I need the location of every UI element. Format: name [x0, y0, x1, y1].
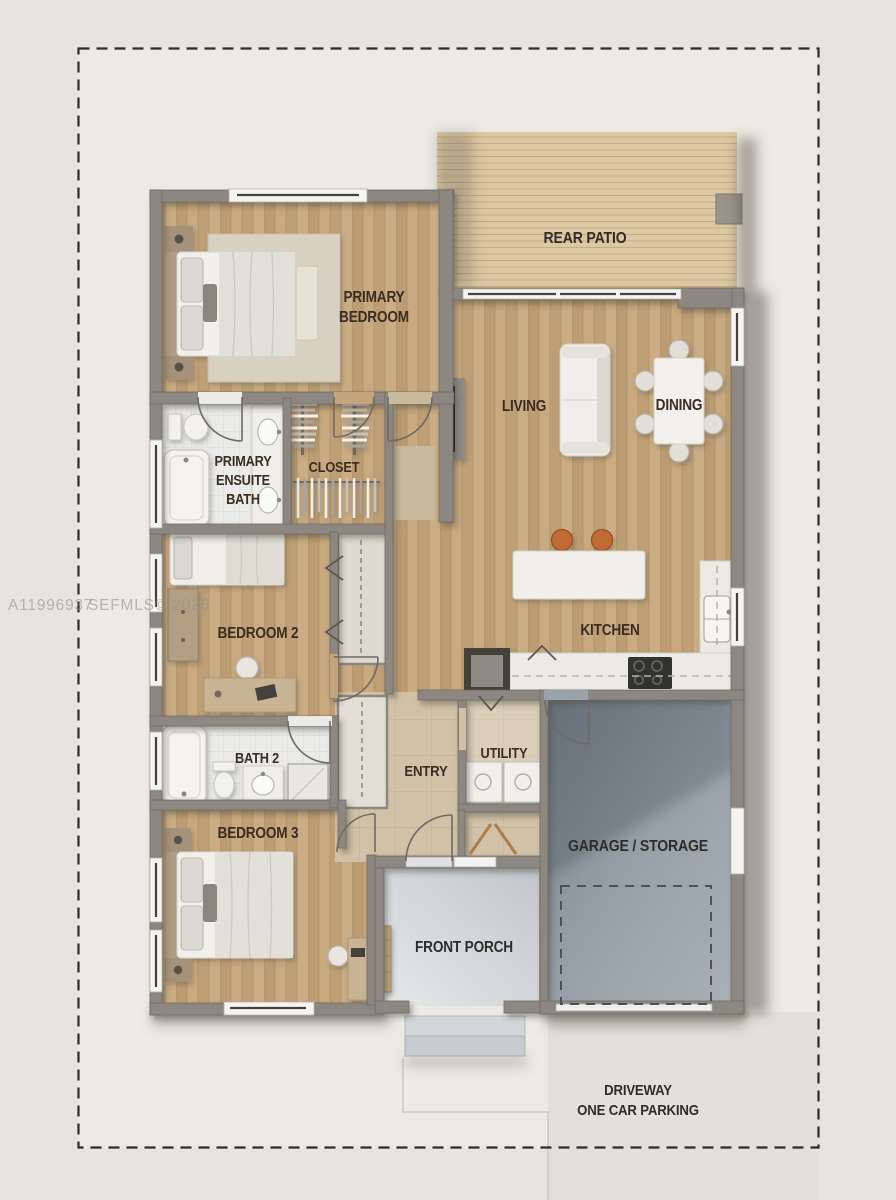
label-bedroom3: BEDROOM 3 — [218, 825, 299, 842]
label-living: LIVING — [502, 398, 546, 415]
bar-stool — [592, 530, 613, 551]
label-driveway-1: DRIVEWAY — [604, 1081, 672, 1098]
label-primary-bedroom-2: BEDROOM — [339, 309, 409, 326]
lamp-icon — [174, 836, 182, 844]
kitchen-counter-bottom — [510, 653, 735, 693]
stove — [628, 657, 672, 689]
toilet2 — [213, 762, 235, 798]
porch-step-2 — [405, 1036, 525, 1056]
lamp-icon — [174, 966, 182, 974]
bed3 — [163, 852, 293, 958]
label-utility: UTILITY — [481, 745, 528, 761]
label-garage: GARAGE / STORAGE — [568, 837, 708, 855]
desk-chair — [328, 946, 348, 966]
bed2 — [170, 531, 284, 585]
hall-tile-patch — [388, 446, 435, 520]
bar-stool — [552, 530, 573, 551]
floor-plan-image: REAR PATIO PRIMARY BEDROOM LIVING DINING… — [0, 0, 896, 1200]
label-primary-bedroom-1: PRIMARY — [343, 289, 405, 306]
bathtub — [164, 450, 209, 526]
kitchen-island — [513, 551, 645, 599]
bed-bench — [296, 266, 318, 340]
floor-plan-svg: REAR PATIO PRIMARY BEDROOM LIVING DINING… — [0, 0, 896, 1200]
porch-step-1 — [405, 1016, 525, 1036]
label-entry: ENTRY — [404, 762, 448, 779]
sofa — [560, 344, 610, 456]
porch-floor — [381, 866, 539, 1006]
label-rear-patio: REAR PATIO — [544, 229, 627, 247]
watermark-source: SEFMLS© 2026 — [88, 597, 210, 614]
toilet — [168, 414, 208, 440]
label-ensuite-2: ENSUITE — [216, 472, 270, 488]
label-ensuite-3: BATH — [226, 491, 260, 507]
label-bath2: BATH 2 — [235, 750, 280, 766]
hall-closet-1 — [338, 532, 387, 664]
lamp-icon — [175, 235, 184, 244]
laptop-icon — [351, 948, 365, 957]
label-bedroom2: BEDROOM 2 — [218, 625, 299, 642]
rear-patio-deck — [437, 132, 742, 290]
bathtub2 — [162, 726, 206, 804]
lamp-icon — [175, 363, 184, 372]
label-closet: CLOSET — [309, 459, 360, 475]
primary-bed — [163, 252, 295, 356]
watermark-id: A11996937 — [8, 597, 93, 614]
nook-desk — [348, 938, 368, 1000]
desk-lamp-icon — [215, 691, 222, 698]
watermark: A11996937 SEFMLS© 2026 — [8, 597, 210, 614]
garage-side-door — [731, 808, 744, 874]
label-ensuite-1: PRIMARY — [214, 453, 271, 469]
label-driveway-2: ONE CAR PARKING — [577, 1101, 699, 1118]
vanity2 — [243, 766, 283, 804]
desk-chair — [236, 657, 258, 679]
label-dining: DINING — [656, 397, 703, 414]
label-kitchen: KITCHEN — [580, 622, 639, 639]
garage-door — [556, 1004, 712, 1011]
pantry-cabinet — [464, 648, 510, 694]
label-front-porch: FRONT PORCH — [415, 939, 513, 956]
